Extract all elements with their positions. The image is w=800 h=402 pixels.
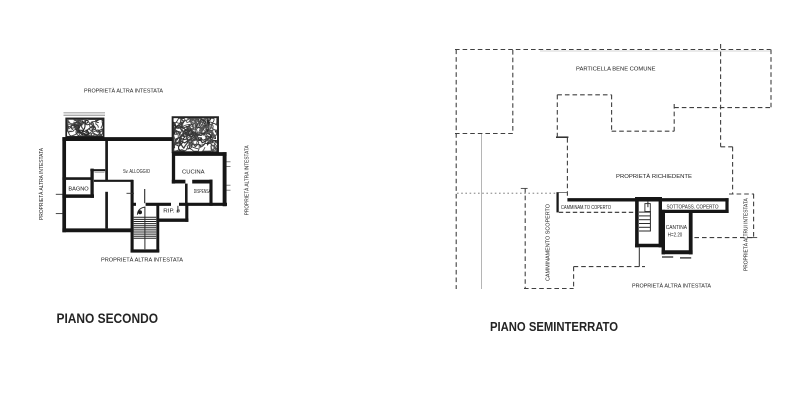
svg-text:PROPRIETÀ ALTRA INTESTATA: PROPRIETÀ ALTRA INTESTATA [84,88,163,95]
svg-text:CAMMINAMENTO SCOPERTO: CAMMINAMENTO SCOPERTO [546,204,552,281]
svg-text:CANTINA: CANTINA [666,225,688,231]
svg-text:SOTTOPASS. COPERTO: SOTTOPASS. COPERTO [667,205,719,211]
svg-text:PROPRIETÀ ALTRUI INTESTATA: PROPRIETÀ ALTRUI INTESTATA [743,198,750,271]
svg-text:PIANO SEMINTERRATO: PIANO SEMINTERRATO [490,319,618,334]
svg-text:PROPRIETÀ ALTRA INTESTATA: PROPRIETÀ ALTRA INTESTATA [632,283,711,290]
svg-text:PIANO SECONDO: PIANO SECONDO [57,311,159,326]
svg-text:BAGNO: BAGNO [68,186,89,192]
svg-text:PROPRIETÀ ALTRA INTESTATA: PROPRIETÀ ALTRA INTESTATA [101,257,183,264]
svg-text:CAMMINAM.TO COPERTO: CAMMINAM.TO COPERTO [561,205,611,211]
svg-text:H=2.20: H=2.20 [668,232,683,238]
svg-text:CUCINA: CUCINA [182,169,205,175]
svg-text:PROPRIETÀ ALTRA INTESTATA: PROPRIETÀ ALTRA INTESTATA [38,148,45,220]
svg-text:DISPENSA: DISPENSA [194,189,211,195]
svg-text:PARTICELLA BENE COMUNE: PARTICELLA BENE COMUNE [576,66,656,72]
svg-text:RIP. ø: RIP. ø [163,209,180,215]
svg-text:PROPRIETÀ RICHIEDENTE: PROPRIETÀ RICHIEDENTE [616,173,692,180]
svg-text:Sv. ALLOGGIO: Sv. ALLOGGIO [123,169,150,175]
svg-text:PROPRIETÀ ALTRA INTESTATA: PROPRIETÀ ALTRA INTESTATA [244,145,251,215]
